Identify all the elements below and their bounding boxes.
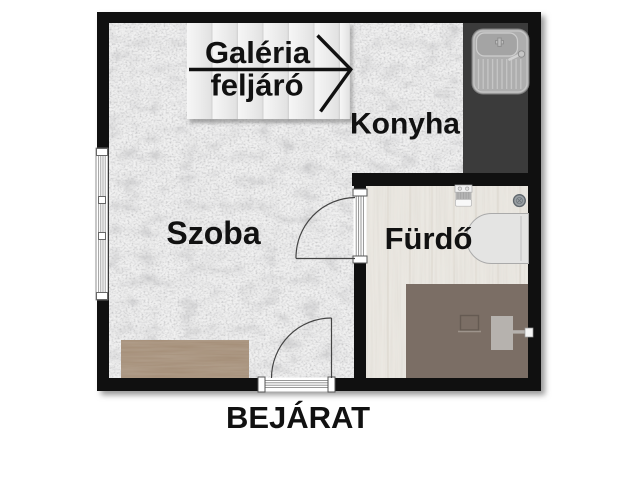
svg-text:feljáró: feljáró [210,68,303,103]
svg-text:Szoba: Szoba [166,215,260,251]
svg-text:Konyha: Konyha [350,108,460,141]
svg-text:BEJÁRAT: BEJÁRAT [226,400,370,435]
svg-text:Galéria: Galéria [205,35,311,70]
svg-text:Fürdő: Fürdő [385,221,473,256]
